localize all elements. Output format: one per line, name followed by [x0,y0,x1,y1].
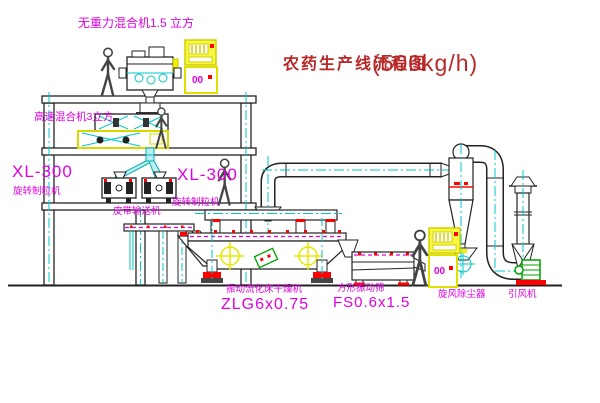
label-gravity-mixer: 无重力混合机1.5 立方 [78,15,194,30]
left-panel-display: 00 [192,75,204,86]
right-panel-display: 00 [434,266,446,277]
control-cabinet-left: 00 [185,40,217,93]
label-granulator-right-model: XL-300 [177,165,238,184]
label-granulator-left-model: XL-300 [12,162,73,181]
diagram-title-capacity: (500kg/h) [372,50,478,76]
label-cyclone: 旋风除尘器 [438,288,486,300]
flow-diagram: 00 [0,0,600,403]
label-granulator-right-name: 旋转制粒机 [172,196,220,208]
label-high-speed-mixer: 高速混合机3立方 [34,110,113,123]
label-screen-name: 方形振动筛 [337,282,385,294]
label-screen-model: FS0.6x1.5 [333,294,410,311]
label-fan: 引风机 [508,288,537,300]
label-dryer-model: ZLG6x0.75 [221,296,309,313]
control-cabinet-right: 00 [429,228,460,287]
label-dryer-name: 振动流化床干燥机 [226,283,303,295]
label-granulator-left-name: 旋转制粒机 [13,185,61,197]
label-belt-conveyor: 皮带输送机 [113,205,161,217]
